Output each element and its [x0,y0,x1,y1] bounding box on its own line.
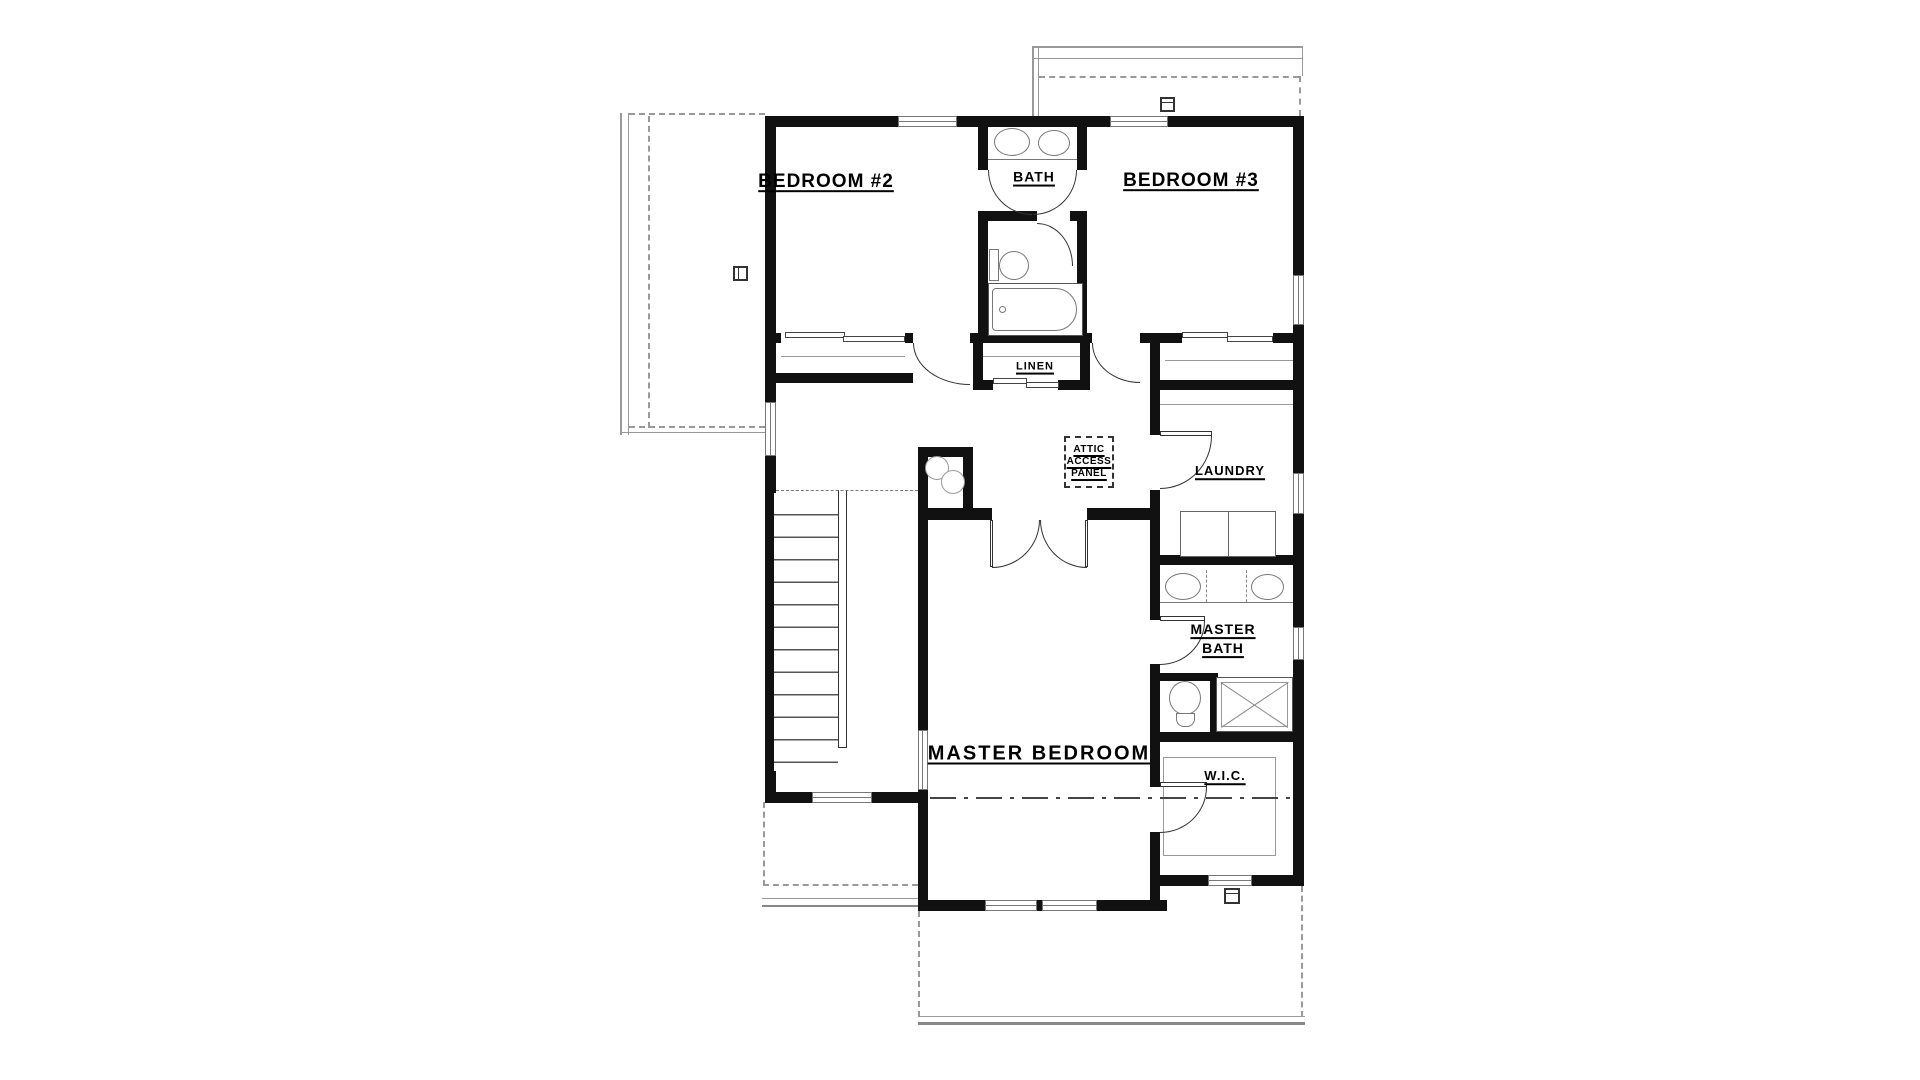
wall-wic-west-1 [1150,742,1160,787]
label-wic: W.I.C. [1204,767,1245,785]
floor-plan: BEDROOM #2 BATH BEDROOM #3 LINEN ATTIC A… [0,0,1920,1080]
wall-master-north-2 [1087,508,1155,520]
mbath-vanity-divider-dashed [1206,570,1207,602]
wall-right-3 [1293,514,1304,627]
label-master-bath: MASTER BATH [1190,620,1255,658]
wall-master-north-1 [918,508,992,520]
door-arc-bath-compartment [1037,223,1073,266]
window-master-bottom-2 [1042,900,1097,911]
wall-south-band-2 [905,333,913,343]
linen-bypass-door [993,378,1027,384]
closet3-bypass-door [1182,332,1228,338]
wall-master-west-1 [918,447,928,730]
mbath-sink [1165,573,1201,600]
closet2-bypass-door [785,332,845,338]
wall-master-west-2 [918,790,928,911]
door-leaf-master-right [1085,520,1088,567]
wall-top [765,116,1304,127]
door-leaf-master-left [990,520,993,567]
stairs [774,493,838,771]
toilet-bowl [999,251,1029,280]
door-arc-bedroom3 [1092,343,1140,383]
wall-wic-bottom-1 [1160,875,1208,886]
garage-roof-right-dashed [1299,76,1301,116]
window-mbath-right [1293,627,1304,660]
mbath-toilet-base [1176,713,1195,727]
label-bedroom2: BEDROOM #2 [758,169,894,195]
window-master-bottom-1 [985,900,1037,911]
wall-wic-bottom-2 [1252,875,1304,886]
window-bedroom3-top [1110,116,1168,127]
wall-mbath-west-1 [1150,565,1160,620]
closet3-bypass-door [1227,336,1273,342]
wall-bath-west-2 [978,211,988,335]
porch-bl-dashed-v [763,802,765,886]
wall-south-band-5 [1273,333,1304,343]
roof-symbol-bottom-right [1224,888,1240,904]
window-wic-bottom [1208,875,1252,886]
garage-roof-left-edge [1032,46,1039,116]
linen-bypass-door [1026,382,1059,388]
wall-south-band-1 [765,333,781,343]
window-bedroom2-top [898,116,957,127]
wall-bottom-left-1 [765,792,812,803]
label-bedroom3: BEDROOM #3 [1123,168,1259,194]
bath-sink [994,128,1030,156]
wall-left-upper [765,116,776,402]
wall-laundry-north [1150,380,1304,390]
porch-bl-bottom-line [762,898,918,907]
window-laundry-right [1293,473,1304,514]
closet-circle [941,470,965,494]
window-master-west [918,730,928,790]
wall-right-2 [1293,325,1304,473]
closet3-shelf-line [1165,360,1293,361]
porch-roof-top-dashed [629,113,765,115]
stair-header-dashed [776,490,918,491]
porch-roof-inner-dashed [648,116,650,428]
door-arc-master-right [1040,520,1087,568]
closet2-shelf-line [781,356,905,357]
wall-south-band-4 [1140,333,1182,343]
closet2-bypass-door [843,336,905,342]
porch-roof-bottom-line [620,432,765,433]
wall-right-4 [1293,660,1304,886]
wall-bath-inner-2 [1070,211,1077,221]
stair-handrail [838,490,847,748]
washer-dryer-divider [1228,511,1229,557]
wall-linen-bottom-1 [973,380,993,390]
center-line [930,797,1293,799]
window-bottom-left [812,792,872,803]
wall-toilet-nook-h [1150,673,1218,681]
door-arc-master-left [992,520,1040,568]
mbath-toilet-bowl [1169,681,1201,715]
mbath-vanity-divider-dashed [1246,570,1247,602]
wall-laundry-west-1 [1150,390,1160,435]
porch-roof-bottom-dashed [629,426,765,428]
label-bath: BATH [1013,168,1055,187]
garage-roof-right-edge [1302,46,1303,76]
label-laundry: LAUNDRY [1195,462,1265,480]
wall-right-1 [1293,116,1304,275]
wall-bath-west-1 [978,127,988,170]
label-linen: LINEN [1016,360,1054,375]
deck-dashed-left [918,911,920,1017]
wall-bath-east-1 [1077,127,1087,170]
laundry-shelf-line [1160,404,1293,405]
toilet-tank [989,249,999,281]
label-attic-access: ATTIC ACCESS PANEL [1067,444,1112,480]
window-bedroom3-right [1293,275,1304,325]
wall-wic-west-2 [1150,832,1160,911]
roof-symbol-left [733,266,748,281]
linen-shelf-line [983,356,1080,357]
door-arc-bedroom2 [913,343,970,385]
roof-symbol-top-right [1160,97,1175,112]
mbath-vanity-counter [1160,602,1293,603]
bath-vanity-counter [988,159,1077,160]
wall-laundry-west-2 [1150,490,1160,560]
bathtub-drain [999,306,1006,313]
wall-master-bottom-1 [918,900,985,911]
wall-closet2-bottom [776,373,913,383]
wall-linen-bottom-2 [1058,380,1090,390]
porch-roof-left-edge [620,113,629,435]
bath-sink [1038,130,1070,156]
deck-dashed-right [1301,886,1303,1017]
garage-roof-top-edge [1032,46,1303,59]
wall-bottom-left-2 [872,792,923,803]
garage-roof-dashed [1039,76,1299,78]
porch-bl-dashed-h [763,884,918,886]
mbath-sink [1251,574,1284,600]
wall-mbath-south [1150,732,1304,742]
label-master-bedroom: MASTER BEDROOM [928,741,1150,768]
deck-bottom-line [918,1016,1305,1025]
window-left-wall [765,402,776,456]
